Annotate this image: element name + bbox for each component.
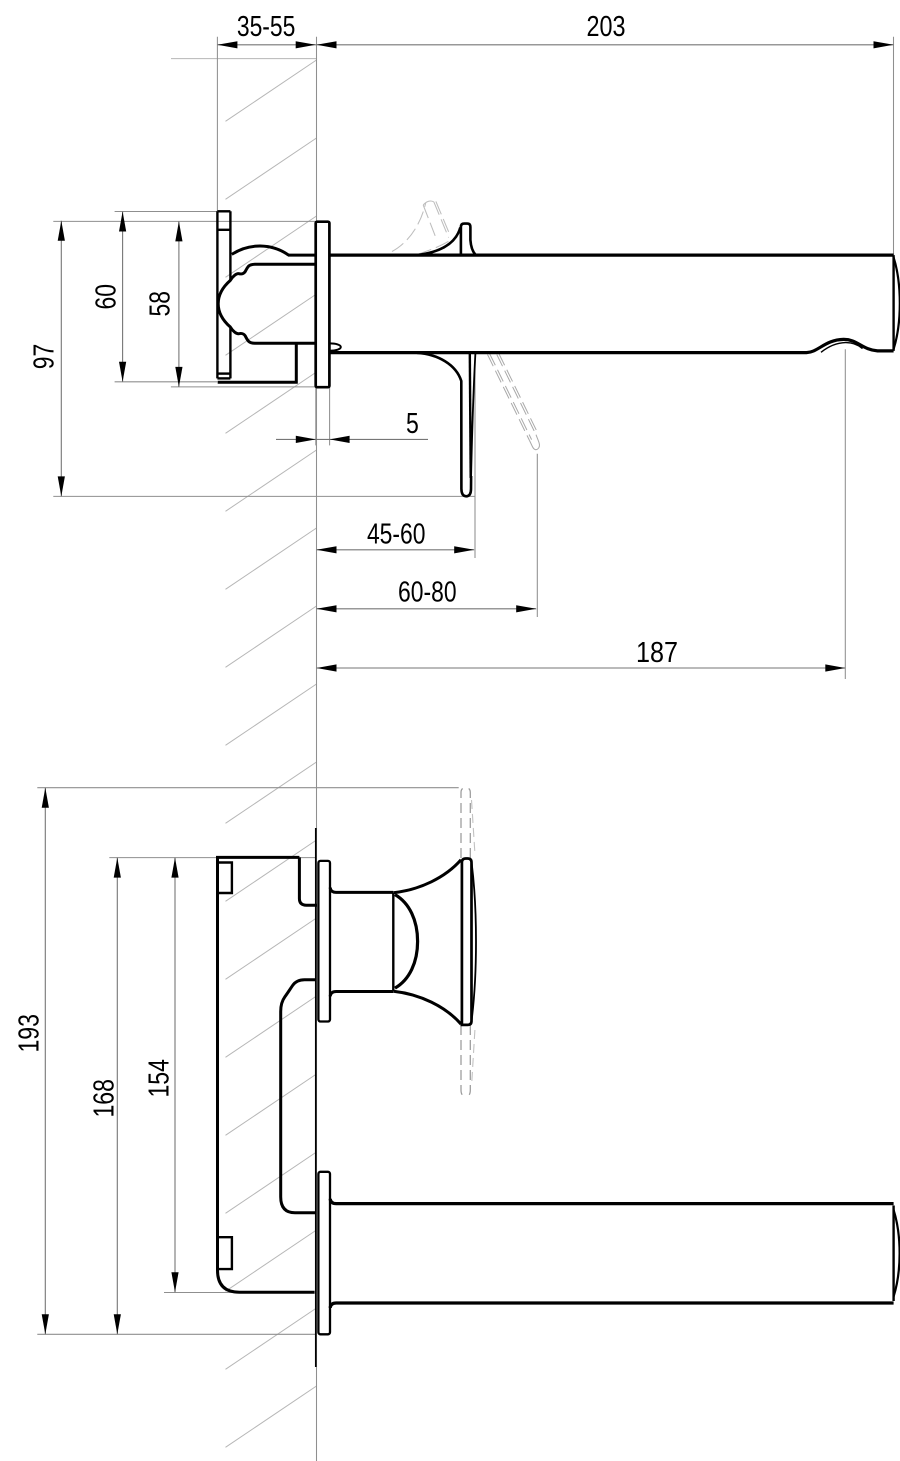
svg-text:97: 97 (29, 344, 61, 370)
svg-text:168: 168 (88, 1079, 120, 1118)
svg-text:203: 203 (587, 11, 626, 43)
svg-text:193: 193 (13, 1014, 45, 1053)
svg-text:35-55: 35-55 (237, 11, 296, 43)
svg-text:5: 5 (406, 408, 419, 440)
svg-text:58: 58 (145, 291, 177, 317)
svg-text:154: 154 (143, 1059, 175, 1098)
svg-text:187: 187 (636, 637, 678, 669)
svg-text:45-60: 45-60 (367, 519, 426, 551)
svg-text:60: 60 (90, 284, 122, 310)
svg-text:60-80: 60-80 (398, 576, 457, 608)
